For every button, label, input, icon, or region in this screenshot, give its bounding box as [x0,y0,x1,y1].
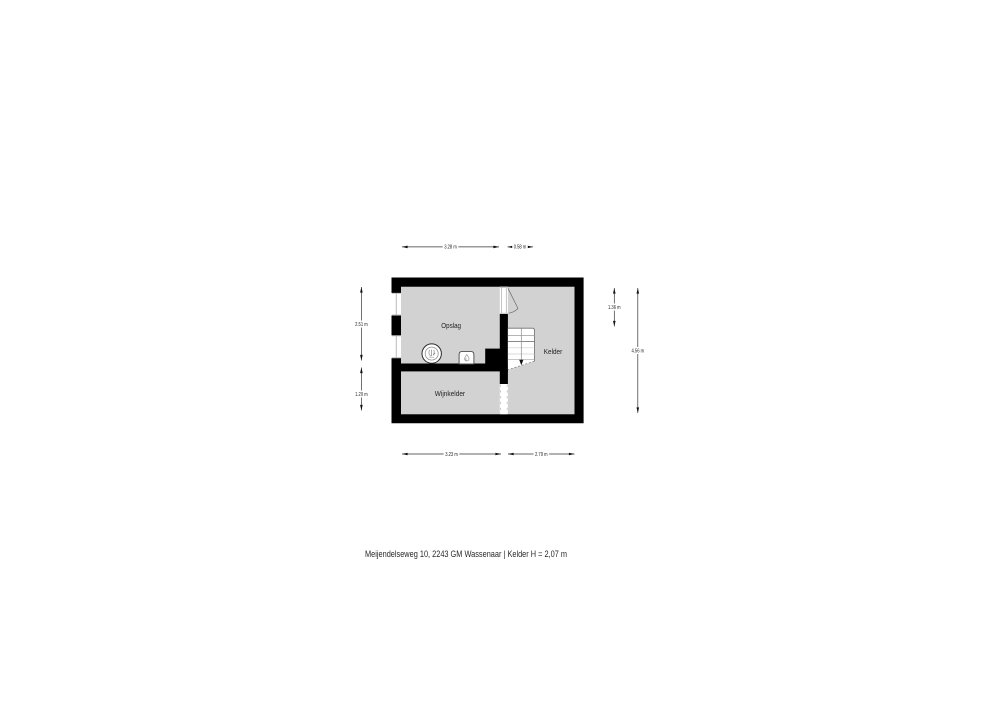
svg-text:2.51 m: 2.51 m [355,322,368,328]
svg-text:Opslag: Opslag [441,323,461,330]
svg-text:Kelder: Kelder [544,349,563,356]
svg-text:3.23 m: 3.23 m [445,452,458,458]
svg-text:Wijnkelder: Wijnkelder [435,391,466,398]
svg-text:3.28 m: 3.28 m [444,245,457,251]
svg-text:0.58 m: 0.58 m [514,245,527,251]
svg-text:2.79 m: 2.79 m [535,452,548,458]
svg-text:4.56 m: 4.56 m [632,348,645,354]
svg-text:Meijendelseweg 10, 2243 GM Was: Meijendelseweg 10, 2243 GM Wassenaar | K… [365,549,567,559]
svg-text:1.36 m: 1.36 m [608,305,621,311]
svg-text:1.20 m: 1.20 m [355,392,368,398]
